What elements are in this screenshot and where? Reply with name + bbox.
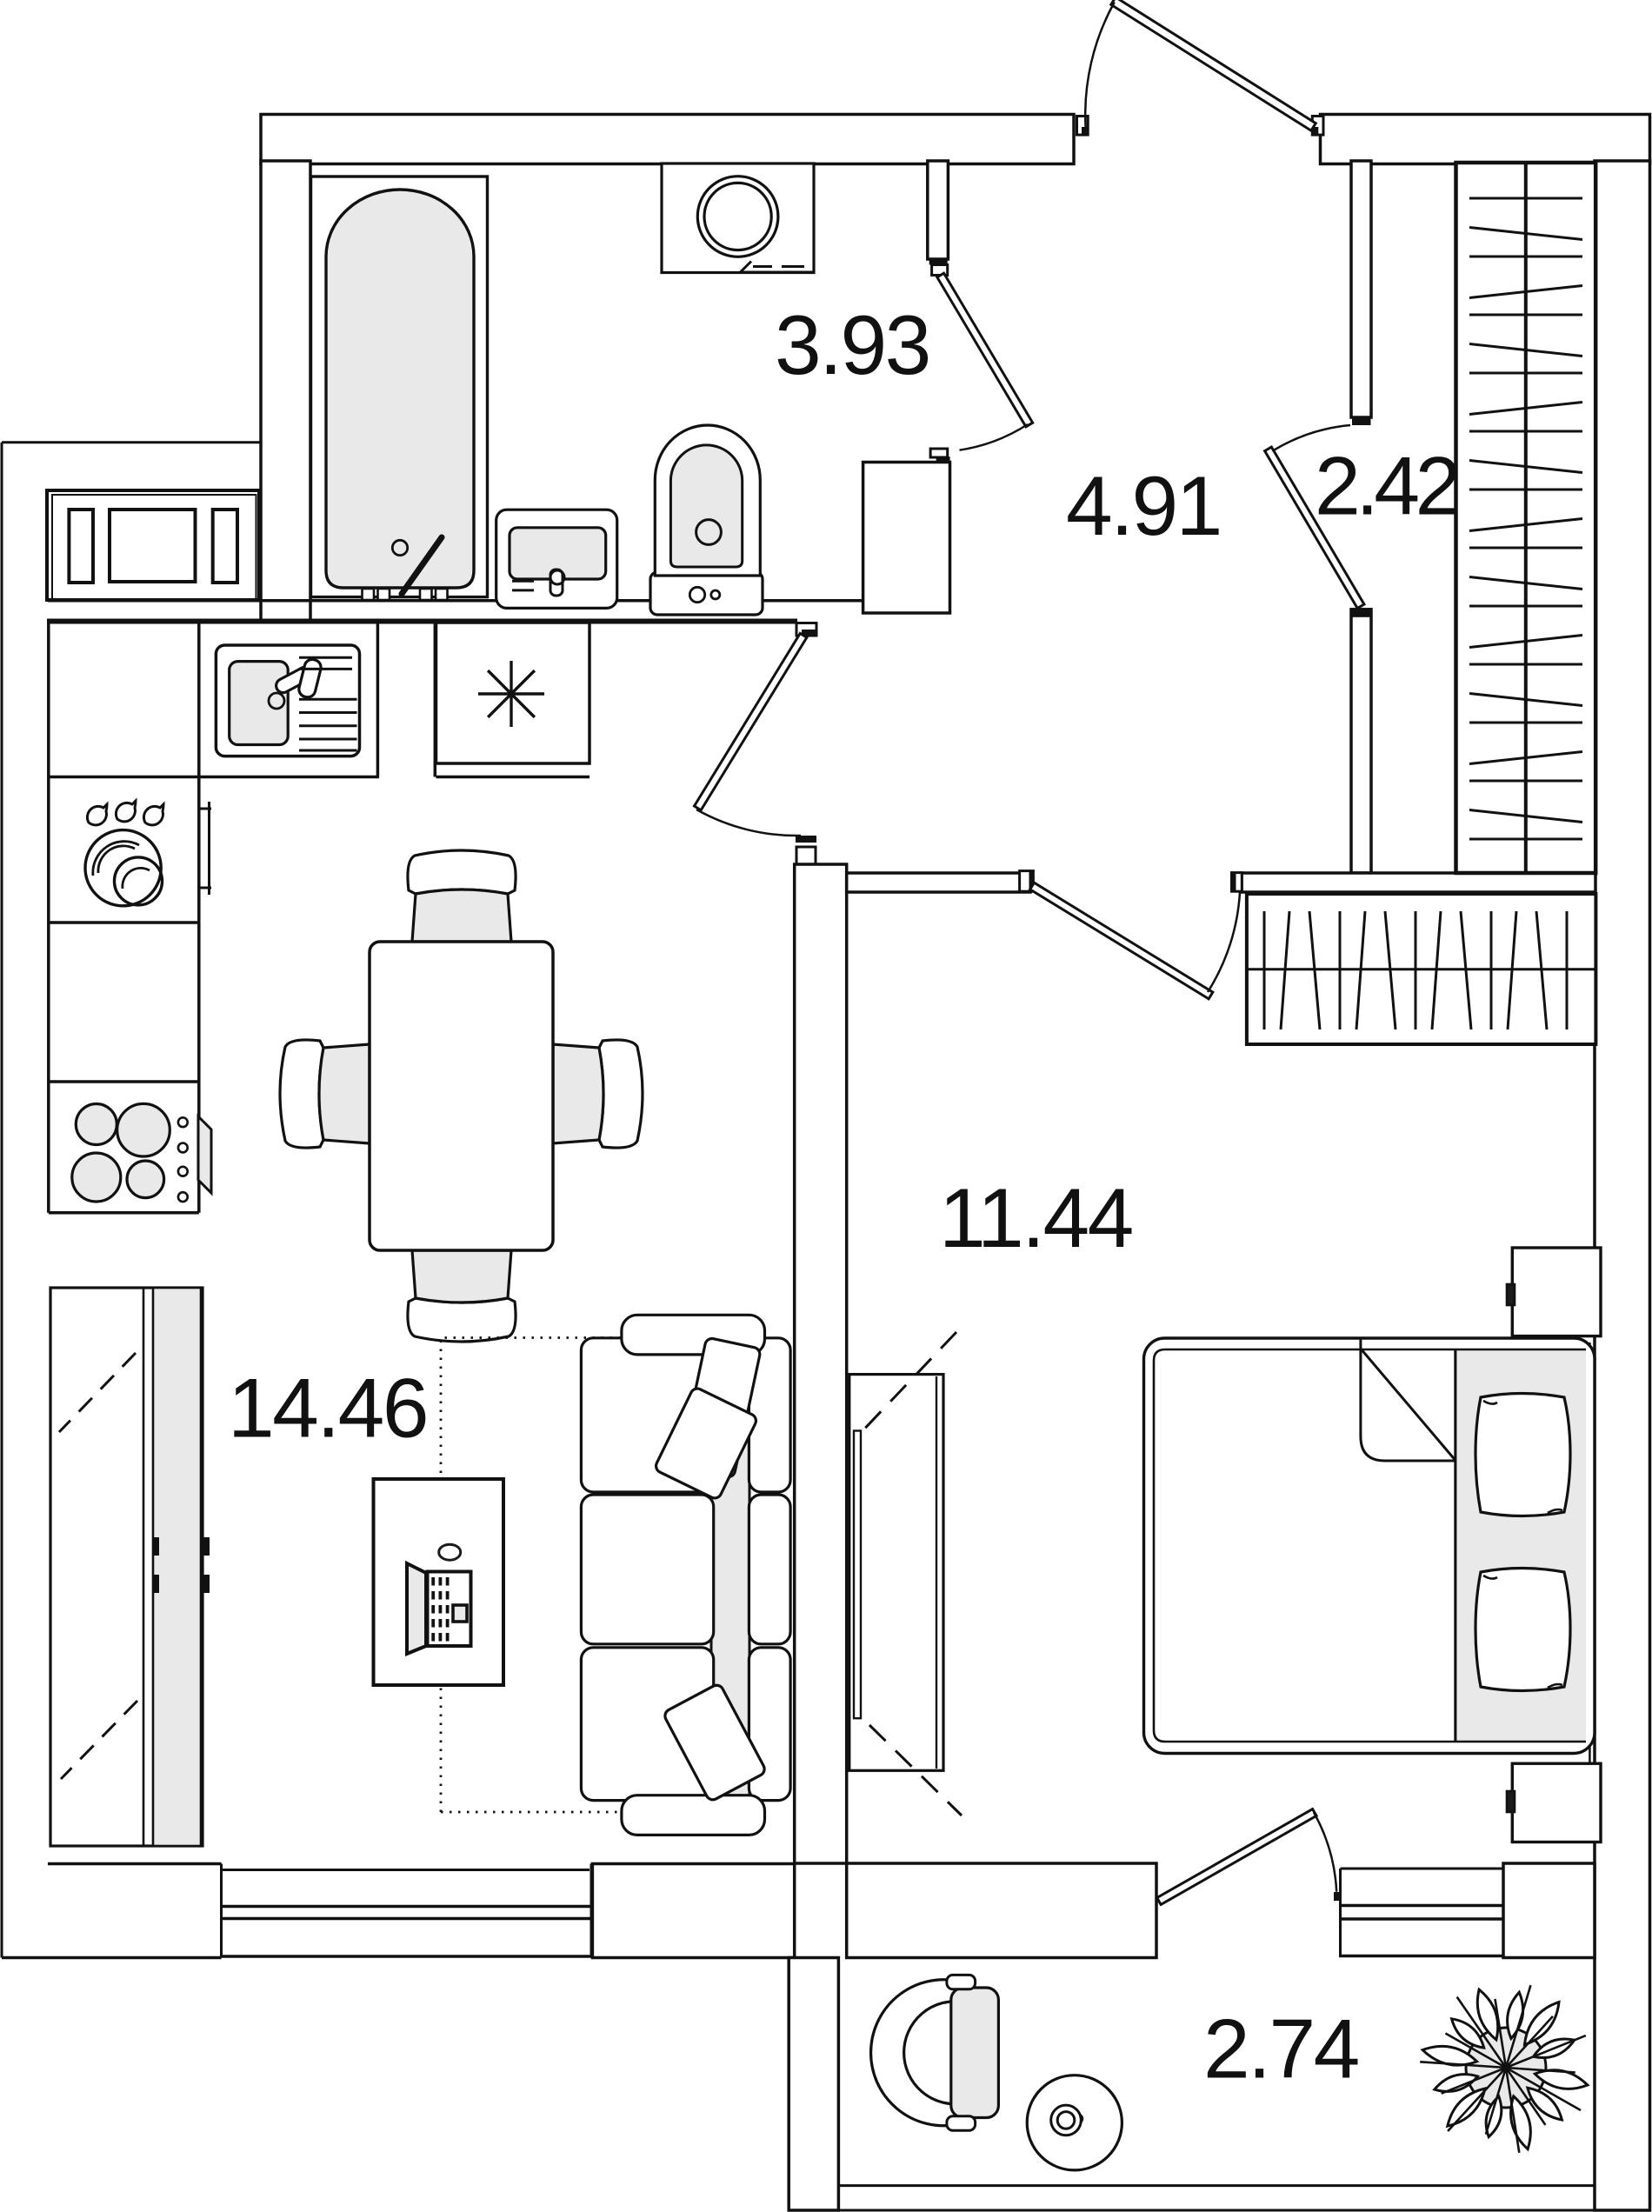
svg-text:2.42: 2.42 <box>1315 440 1458 532</box>
svg-text:11.44: 11.44 <box>939 1172 1132 1265</box>
svg-text:2.74: 2.74 <box>1203 2003 1358 2096</box>
svg-text:14.46: 14.46 <box>228 1362 427 1455</box>
svg-text:4.91: 4.91 <box>1066 460 1221 553</box>
svg-text:3.93: 3.93 <box>775 299 929 392</box>
